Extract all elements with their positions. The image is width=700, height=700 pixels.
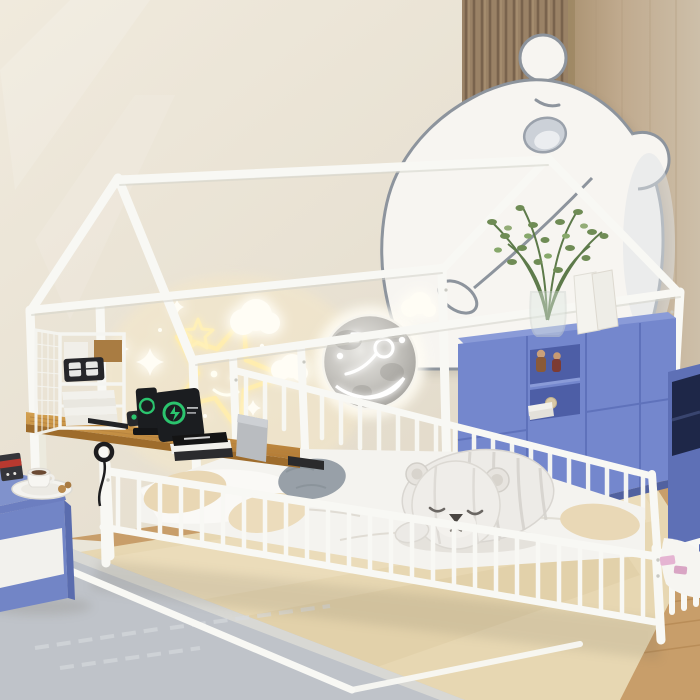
laptop [236, 414, 268, 462]
product-photo-kids-house-bed [0, 0, 700, 700]
book-stack [170, 432, 233, 461]
snack-box [0, 453, 24, 482]
near-fence-left-post [106, 464, 110, 556]
white-box [64, 342, 88, 360]
cookie [65, 482, 72, 489]
coffee [32, 470, 47, 475]
star-eye [211, 371, 218, 378]
white-cards [574, 270, 618, 334]
scene-canvas [0, 0, 700, 700]
flip-clock [63, 357, 104, 382]
glass-vase [530, 292, 566, 336]
cookie [58, 485, 66, 493]
blue-side-unit [668, 364, 700, 566]
